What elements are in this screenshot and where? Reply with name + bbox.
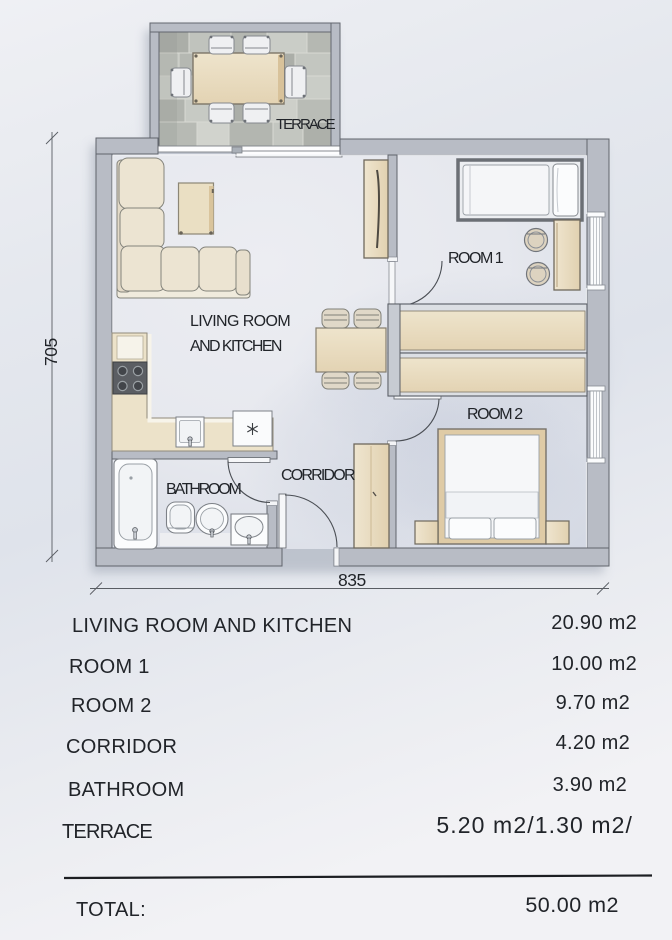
svg-text:AND KITCHEN: AND KITCHEN (190, 338, 282, 355)
svg-text:TERRACE: TERRACE (276, 116, 336, 133)
svg-text:835: 835 (338, 570, 366, 590)
svg-text:CORRIDOR: CORRIDOR (281, 467, 355, 484)
svg-text:ROOM 1: ROOM 1 (448, 250, 504, 267)
svg-text:TERRACE: TERRACE (62, 821, 152, 843)
svg-text:ROOM 1: ROOM 1 (69, 656, 150, 678)
svg-text:TOTAL:: TOTAL: (76, 899, 146, 921)
svg-text:BATHROOM: BATHROOM (68, 779, 184, 801)
svg-text:LIVING ROOM: LIVING ROOM (190, 313, 290, 330)
svg-text:705: 705 (41, 338, 61, 366)
svg-text:ROOM 2: ROOM 2 (71, 695, 152, 717)
svg-text:50.00 m2: 50.00 m2 (525, 893, 619, 917)
svg-text:5.20 m2/1.30 m2/: 5.20 m2/1.30 m2/ (436, 812, 633, 838)
svg-text:LIVING ROOM AND KITCHEN: LIVING ROOM AND KITCHEN (72, 615, 352, 637)
svg-text:ROOM 2: ROOM 2 (467, 406, 523, 423)
svg-text:9.70 m2: 9.70 m2 (556, 692, 630, 714)
svg-text:10.00 m2: 10.00 m2 (551, 653, 637, 675)
svg-text:3.90 m2: 3.90 m2 (553, 774, 627, 796)
svg-text:BATHROOM: BATHROOM (166, 481, 242, 498)
svg-text:4.20 m2: 4.20 m2 (556, 732, 630, 754)
svg-text:CORRIDOR: CORRIDOR (66, 736, 177, 758)
svg-text:20.90 m2: 20.90 m2 (551, 612, 637, 634)
